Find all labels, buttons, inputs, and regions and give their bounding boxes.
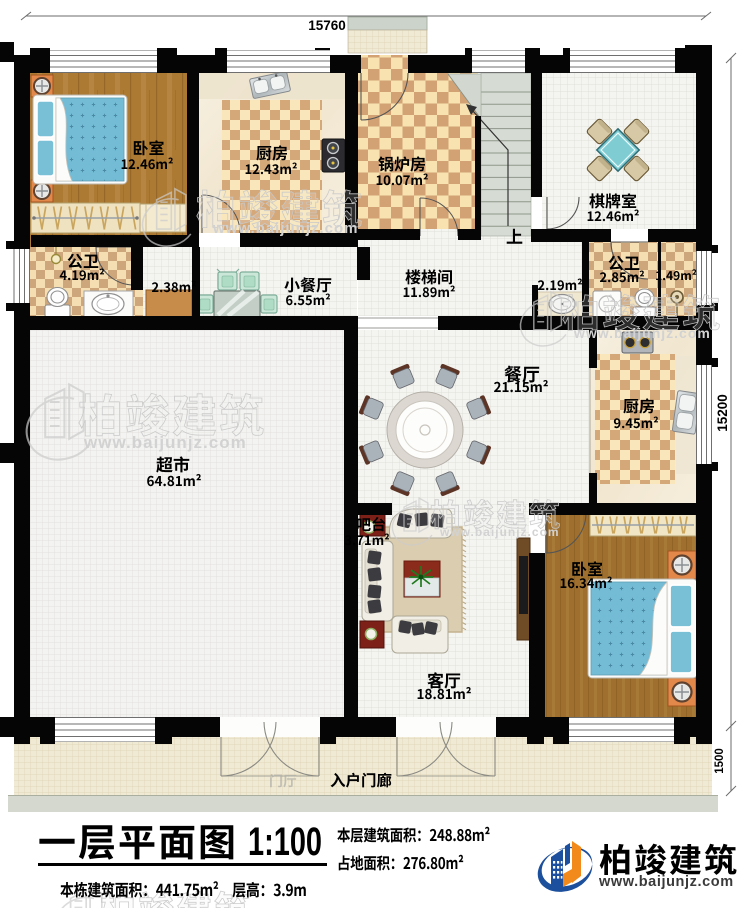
svg-text:1500: 1500 [714,748,726,774]
svg-text:www.baijunjz.com: www.baijunjz.com [439,525,560,539]
svg-text:www.baijunjz.com: www.baijunjz.com [598,874,734,890]
svg-text:15760: 15760 [308,18,346,33]
svg-text:1:100: 1:100 [248,820,322,864]
svg-text:www.baijunjz.com: www.baijunjz.com [573,325,711,341]
svg-text:15200: 15200 [715,394,730,432]
svg-text:www.baijunjz.com: www.baijunjz.com [83,433,247,452]
svg-text:www.baijunjz.com: www.baijunjz.com [212,220,358,237]
